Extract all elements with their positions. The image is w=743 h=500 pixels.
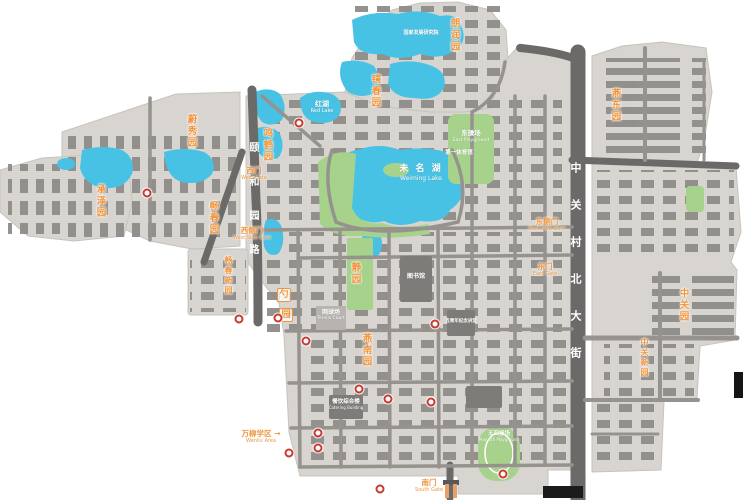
- red-point-marker: [285, 449, 294, 458]
- label-overlay: 中关村北大街 颐和园路 朗润园 镜春园 燕东园 蔚秀园 鸣鹤园 承泽园 畅春园 …: [0, 0, 743, 500]
- garden-label-weixiuyuan: 蔚秀园: [186, 114, 196, 149]
- centennial-hall-label: 百周年纪念讲堂: [440, 319, 482, 324]
- garden-label-changchunyuan: 畅春园: [208, 201, 218, 236]
- may4-playground-label: 五四操场 May 4th Playground: [474, 431, 524, 442]
- library-label: 图书馆: [402, 273, 430, 280]
- tennis-court-en: Tennis Court: [313, 316, 349, 321]
- garden-label-yannanyuan: 燕南园: [361, 333, 371, 368]
- garden-label-yandongyuan: 燕东园: [610, 88, 620, 123]
- red-point-marker: [427, 398, 436, 407]
- catering-en: Catering Building: [328, 406, 364, 411]
- east-playground-en: East Playground: [448, 138, 494, 143]
- red-point-marker: [499, 470, 508, 479]
- street-name-yiheyuan-road: 颐和园路: [247, 142, 257, 278]
- east-gate-label: 东门 East Gate: [525, 263, 565, 277]
- red-lake-label: 红湖 Red Lake: [304, 100, 340, 114]
- red-point-marker: [235, 315, 244, 324]
- weiming-lake-zh: 未 名 湖: [390, 164, 452, 175]
- east-gate-en: East Gate: [525, 272, 565, 278]
- gym1-zh: 第一体育馆: [438, 150, 480, 157]
- east-playground-label: 东操场 East Playground: [448, 130, 494, 143]
- red-point-marker: [314, 444, 323, 453]
- nsd-zh: 国家发展研究院: [398, 30, 444, 36]
- garden-label-jingchunyuan: 镜春园: [370, 74, 380, 109]
- red-point-marker: [384, 395, 393, 404]
- red-lake-en: Red Lake: [304, 108, 340, 114]
- garden-label-changchunxinyuan: 畅春新园: [224, 256, 232, 296]
- nsd-label: 国家发展研究院: [398, 30, 444, 36]
- campus-map: 中关村北大街 颐和园路 朗润园 镜春园 燕东园 蔚秀园 鸣鹤园 承泽园 畅春园 …: [0, 0, 743, 500]
- red-point-marker: [274, 314, 283, 323]
- red-point-marker: [431, 320, 440, 329]
- gym1-label: 第一体育馆: [438, 150, 480, 157]
- street-name-zhongguancun-north: 中关村北大街: [570, 162, 581, 384]
- east-side-gate-label: 东侧门 East Side Gate: [522, 218, 572, 232]
- garden-label-mingheyuan: 鸣鹤园: [262, 128, 272, 163]
- south-gate-label: 南门 South Gate: [414, 479, 444, 493]
- garden-label-chengzeyuan: 承泽园: [95, 184, 105, 219]
- southwest-direction-sign: 万柳学区 → Wanliu Area: [226, 430, 296, 444]
- may4-playground-en: May 4th Playground: [474, 438, 524, 443]
- library-zh: 图书馆: [402, 273, 430, 280]
- red-point-marker: [314, 429, 323, 438]
- garden-label-zhongguanxinyuan: 中关新园: [640, 338, 648, 378]
- west-gate-en: West Gate: [234, 176, 274, 182]
- weiming-lake-label: 未 名 湖 Weiming Lake: [390, 164, 452, 182]
- garden-label-zhongguanyuan: 中关园: [678, 288, 688, 323]
- east-side-gate-en: East Side Gate: [522, 227, 572, 233]
- catering-building-label: 餐饮综合楼 Catering Building: [328, 399, 364, 410]
- centennial-hall-zh: 百周年纪念讲堂: [440, 319, 482, 324]
- garden-label-jingyuan: 静园: [350, 262, 360, 285]
- red-point-marker: [376, 485, 385, 494]
- shaoyuan-box-char-1: 勺: [277, 288, 291, 302]
- southwest-sign-en: Wanliu Area: [226, 439, 296, 445]
- red-point-marker: [355, 385, 364, 394]
- west-gate-label: 西门 West Gate: [234, 167, 274, 181]
- south-gate-en: South Gate: [414, 488, 444, 494]
- red-point-marker: [143, 189, 152, 198]
- garden-label-langrunyuan: 朗润园: [449, 18, 459, 53]
- west-side-gate-label: 西侧门 West Side Gate: [227, 227, 277, 241]
- weiming-lake-en: Weiming Lake: [390, 175, 452, 182]
- red-point-marker: [295, 119, 304, 128]
- red-point-marker: [302, 337, 311, 346]
- west-side-gate-en: West Side Gate: [227, 236, 277, 242]
- east-playground-zh: 东操场: [448, 130, 494, 138]
- tennis-court-label: 网球场 Tennis Court: [313, 309, 349, 322]
